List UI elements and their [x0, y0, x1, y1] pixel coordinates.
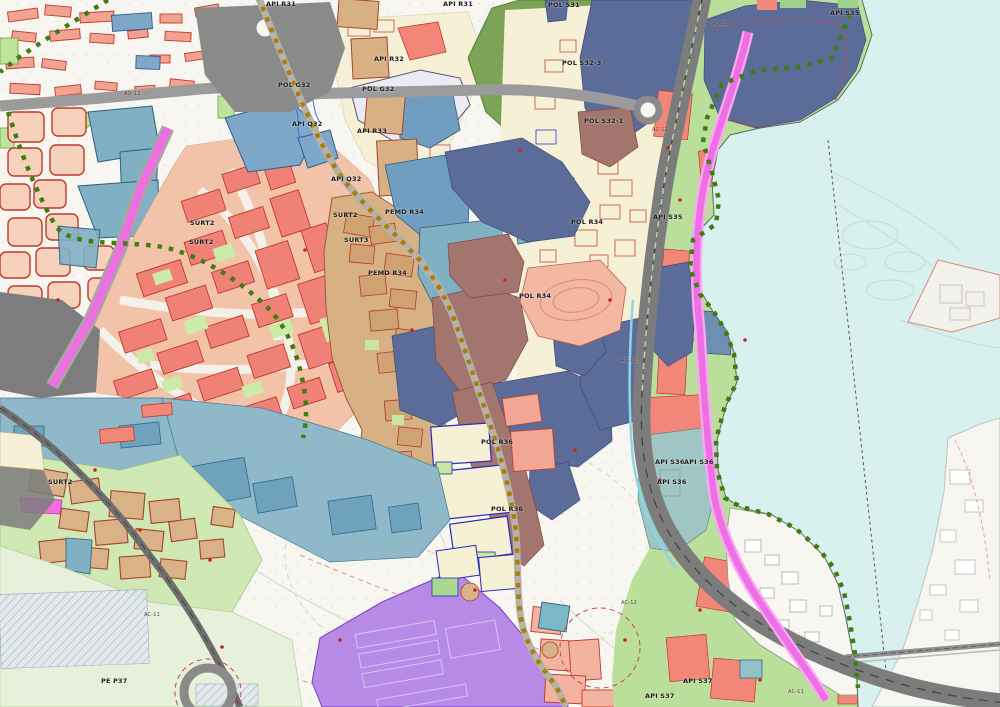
roundabout-north-center — [637, 99, 659, 121]
zoning-map-canvas — [0, 0, 1000, 707]
map-viewport[interactable]: API R31API R31POL S31API S35API R32POL G… — [0, 0, 1000, 707]
